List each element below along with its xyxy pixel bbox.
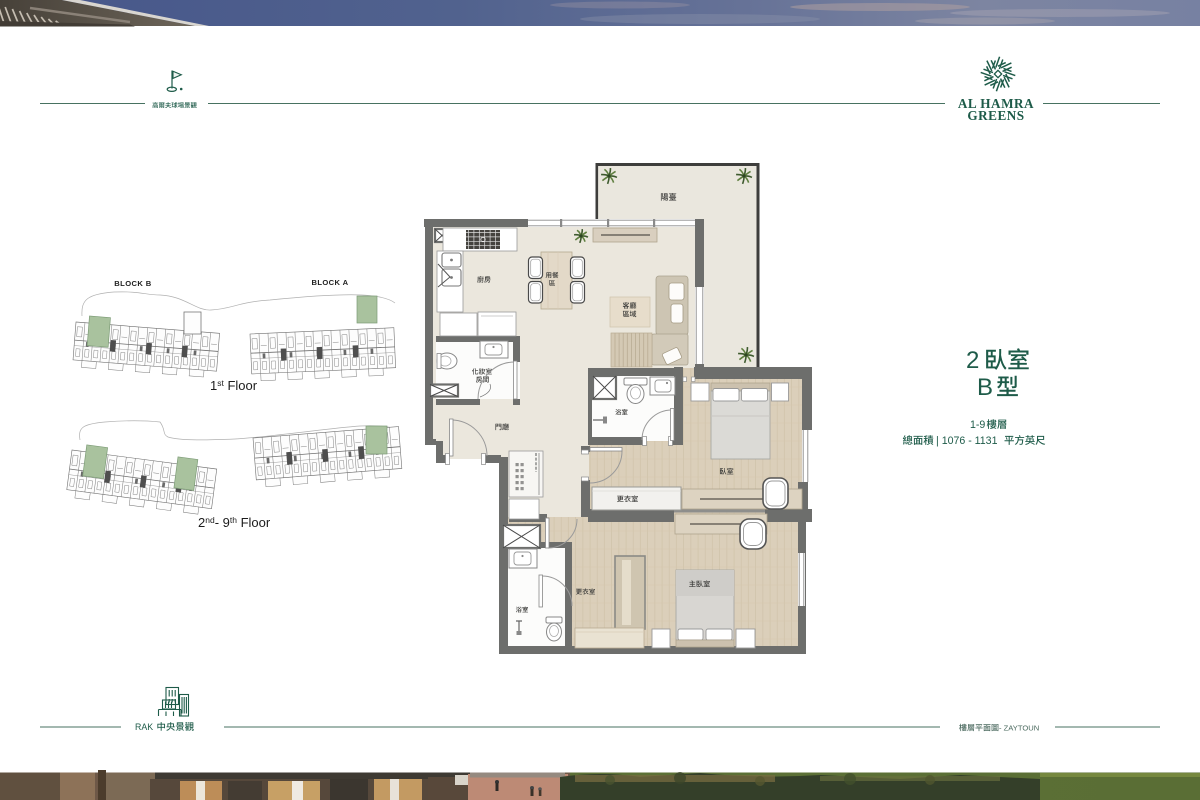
svg-text:BLOCK A: BLOCK A xyxy=(311,278,348,287)
svg-text:1st Floor: 1st Floor xyxy=(210,378,258,393)
svg-text:RAK: RAK xyxy=(135,722,153,732)
svg-text:| 1076 - 1131: | 1076 - 1131 xyxy=(936,435,998,447)
svg-text:B: B xyxy=(977,374,993,401)
svg-text:GREENS: GREENS xyxy=(967,108,1024,123)
svg-text:1-9: 1-9 xyxy=(970,419,985,431)
svg-text:- ZAYTOUN: - ZAYTOUN xyxy=(999,724,1039,733)
svg-text:BLOCK B: BLOCK B xyxy=(114,279,152,288)
svg-text:2: 2 xyxy=(966,347,979,374)
